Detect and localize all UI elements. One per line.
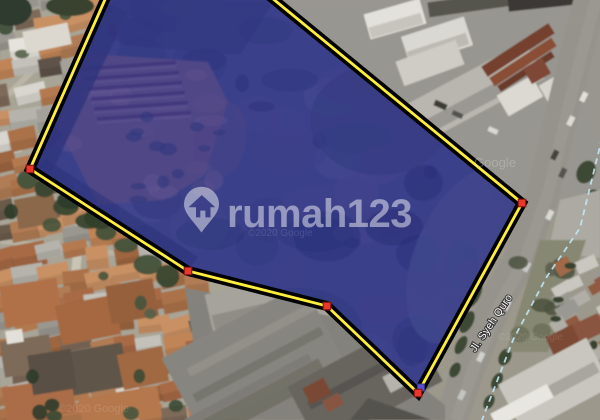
- svg-text:©2020 Google: ©2020 Google: [248, 228, 313, 239]
- svg-text:©2020 Google: ©2020 Google: [58, 403, 129, 415]
- svg-text:Google: Google: [474, 155, 516, 170]
- svg-text:©2020 Google: ©2020 Google: [498, 332, 563, 343]
